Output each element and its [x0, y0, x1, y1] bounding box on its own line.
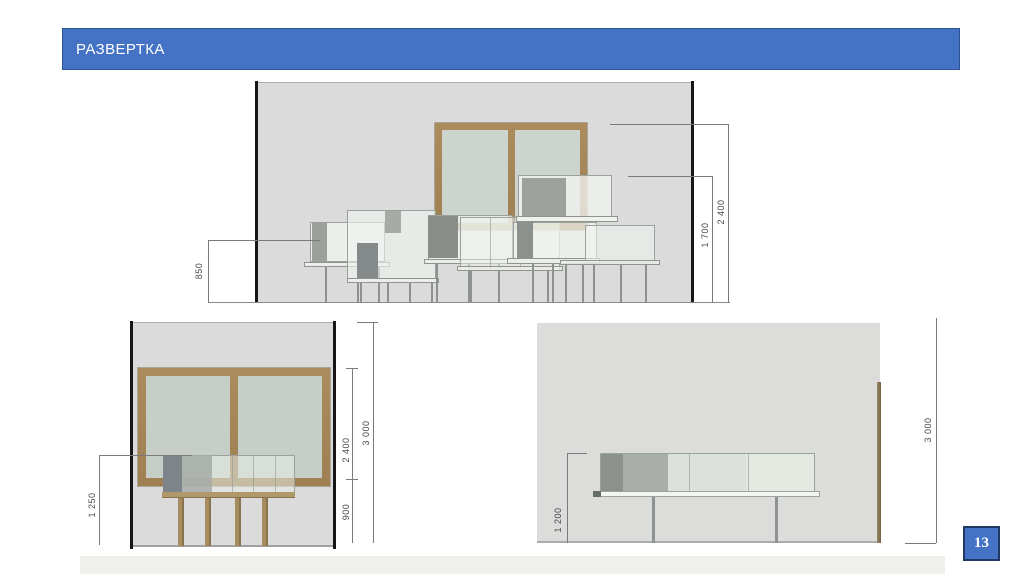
dimension-line — [352, 368, 353, 543]
cabinet-side-panel — [522, 178, 566, 218]
dimension-line — [373, 322, 374, 543]
page-title: РАЗВЕРТКА — [63, 41, 165, 58]
table-leg — [387, 283, 389, 302]
table-leg — [205, 498, 211, 546]
wall-edge-right — [691, 81, 694, 303]
page-number: 13 — [974, 535, 989, 552]
shelf-board — [593, 491, 820, 497]
table-leg — [431, 283, 433, 302]
cabinet-divider — [275, 456, 276, 492]
shelf-board — [516, 216, 618, 222]
cabinet-side-panel — [182, 455, 212, 493]
table-leg — [262, 498, 268, 546]
dimension-label-2400: 2 400 — [715, 182, 727, 242]
dimension-label-1250: 1 250 — [86, 475, 98, 535]
sideboard-section-dark — [601, 454, 623, 491]
cabinet-side-panel — [428, 216, 458, 258]
page-number-badge: 13 — [963, 526, 1000, 561]
cabinet-divider — [253, 456, 254, 492]
dimension-label-1700: 1 700 — [699, 205, 711, 265]
table-leg — [552, 264, 554, 302]
table-leg — [547, 271, 549, 302]
sideboard-section-lightest — [746, 454, 814, 491]
cabinet-side-panel — [163, 455, 182, 493]
elevation-drawing-bottom-left: 1 250 2 400 900 3 000 — [80, 315, 400, 574]
table-leg — [565, 264, 567, 302]
cabinet-divider — [748, 454, 749, 491]
table-leg — [235, 498, 241, 546]
sideboard-section-medium — [623, 454, 668, 491]
wall-edge-left — [130, 321, 133, 549]
table-leg — [325, 267, 327, 302]
cabinet-divider — [490, 217, 491, 271]
slide-title-bar: РАЗВЕРТКА — [62, 28, 960, 70]
dimension-label-900: 900 — [340, 482, 352, 542]
table-leg — [645, 265, 647, 302]
dimension-label-1200: 1 200 — [552, 490, 564, 550]
dimension-line — [208, 240, 209, 303]
dimension-extension-line — [610, 124, 728, 125]
elevation-drawing-bottom-right: 1 200 3 000 — [530, 315, 960, 574]
dimension-label-2400: 2 400 — [340, 420, 352, 480]
table-leg — [409, 283, 411, 302]
cabinet-divider — [689, 454, 690, 491]
dimension-line — [99, 455, 100, 545]
dimension-extension-line — [628, 176, 712, 177]
dimension-line — [936, 318, 937, 543]
dimension-label-3000: 3 000 — [922, 400, 934, 460]
dimension-label-850: 850 — [193, 241, 205, 301]
presentation-slide: РАЗВЕРТКА — [0, 0, 1024, 574]
floor-band — [80, 556, 945, 574]
ground-line — [208, 302, 730, 303]
sideboard — [600, 453, 815, 492]
cabinet-side-panel — [312, 223, 327, 261]
cabinet-side-panel — [357, 243, 378, 283]
wall-edge-right — [333, 321, 336, 549]
table-leg — [436, 264, 438, 302]
table-leg — [652, 497, 655, 543]
cabinet-side-panel — [517, 222, 533, 263]
window-pane — [442, 130, 508, 223]
table-leg — [178, 498, 184, 546]
cabinet-divider — [232, 456, 233, 492]
table-leg — [532, 264, 534, 302]
table-leg — [582, 264, 584, 302]
table-leg — [620, 265, 622, 302]
dimension-line — [728, 124, 729, 303]
table-leg — [470, 271, 472, 302]
table-leg — [593, 265, 595, 302]
wall — [537, 323, 880, 543]
shelf-end-cap — [593, 491, 601, 497]
dimension-tick — [346, 368, 358, 369]
wall-edge-left — [255, 81, 258, 303]
table-leg — [360, 283, 362, 302]
wood-corner-strip — [877, 382, 881, 543]
dimension-tick — [905, 543, 936, 544]
cabinet-side-panel — [385, 211, 401, 233]
dimension-line — [567, 453, 568, 543]
dimension-extension-line — [208, 240, 320, 241]
cabinet-unit — [585, 225, 655, 263]
elevation-drawing-top: 850 1 700 2 400 — [195, 75, 745, 310]
dimension-line — [712, 176, 713, 303]
dimension-extension-line — [99, 455, 192, 456]
table-leg — [775, 497, 778, 543]
dimension-tick — [567, 453, 587, 454]
dimension-tick — [357, 322, 378, 323]
sideboard-section-light — [668, 454, 746, 491]
dimension-label-3000: 3 000 — [360, 403, 372, 463]
